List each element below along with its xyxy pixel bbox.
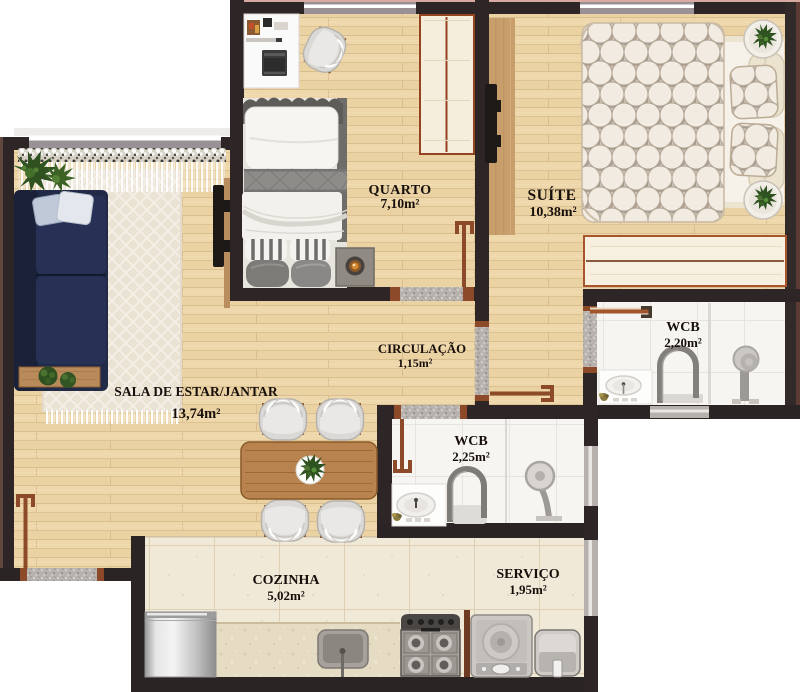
svg-text:SUÍTE: SUÍTE [527,187,576,204]
svg-text:SERVIÇO: SERVIÇO [496,567,559,582]
svg-text:10,38m²: 10,38m² [529,205,576,220]
svg-text:13,74m²: 13,74m² [171,406,220,422]
svg-text:SALA DE ESTAR/JANTAR: SALA DE ESTAR/JANTAR [114,384,278,399]
svg-text:CIRCULAÇÃO: CIRCULAÇÃO [378,342,466,356]
svg-text:2,20m²: 2,20m² [664,335,702,350]
svg-text:1,15m²: 1,15m² [398,356,433,370]
svg-text:COZINHA: COZINHA [253,573,321,588]
svg-text:2,25m²: 2,25m² [452,449,490,464]
svg-text:5,02m²: 5,02m² [267,588,305,603]
svg-text:WCB: WCB [666,320,699,335]
svg-text:WCB: WCB [454,434,487,449]
svg-text:7,10m²: 7,10m² [381,196,420,211]
svg-text:1,95m²: 1,95m² [509,582,547,597]
